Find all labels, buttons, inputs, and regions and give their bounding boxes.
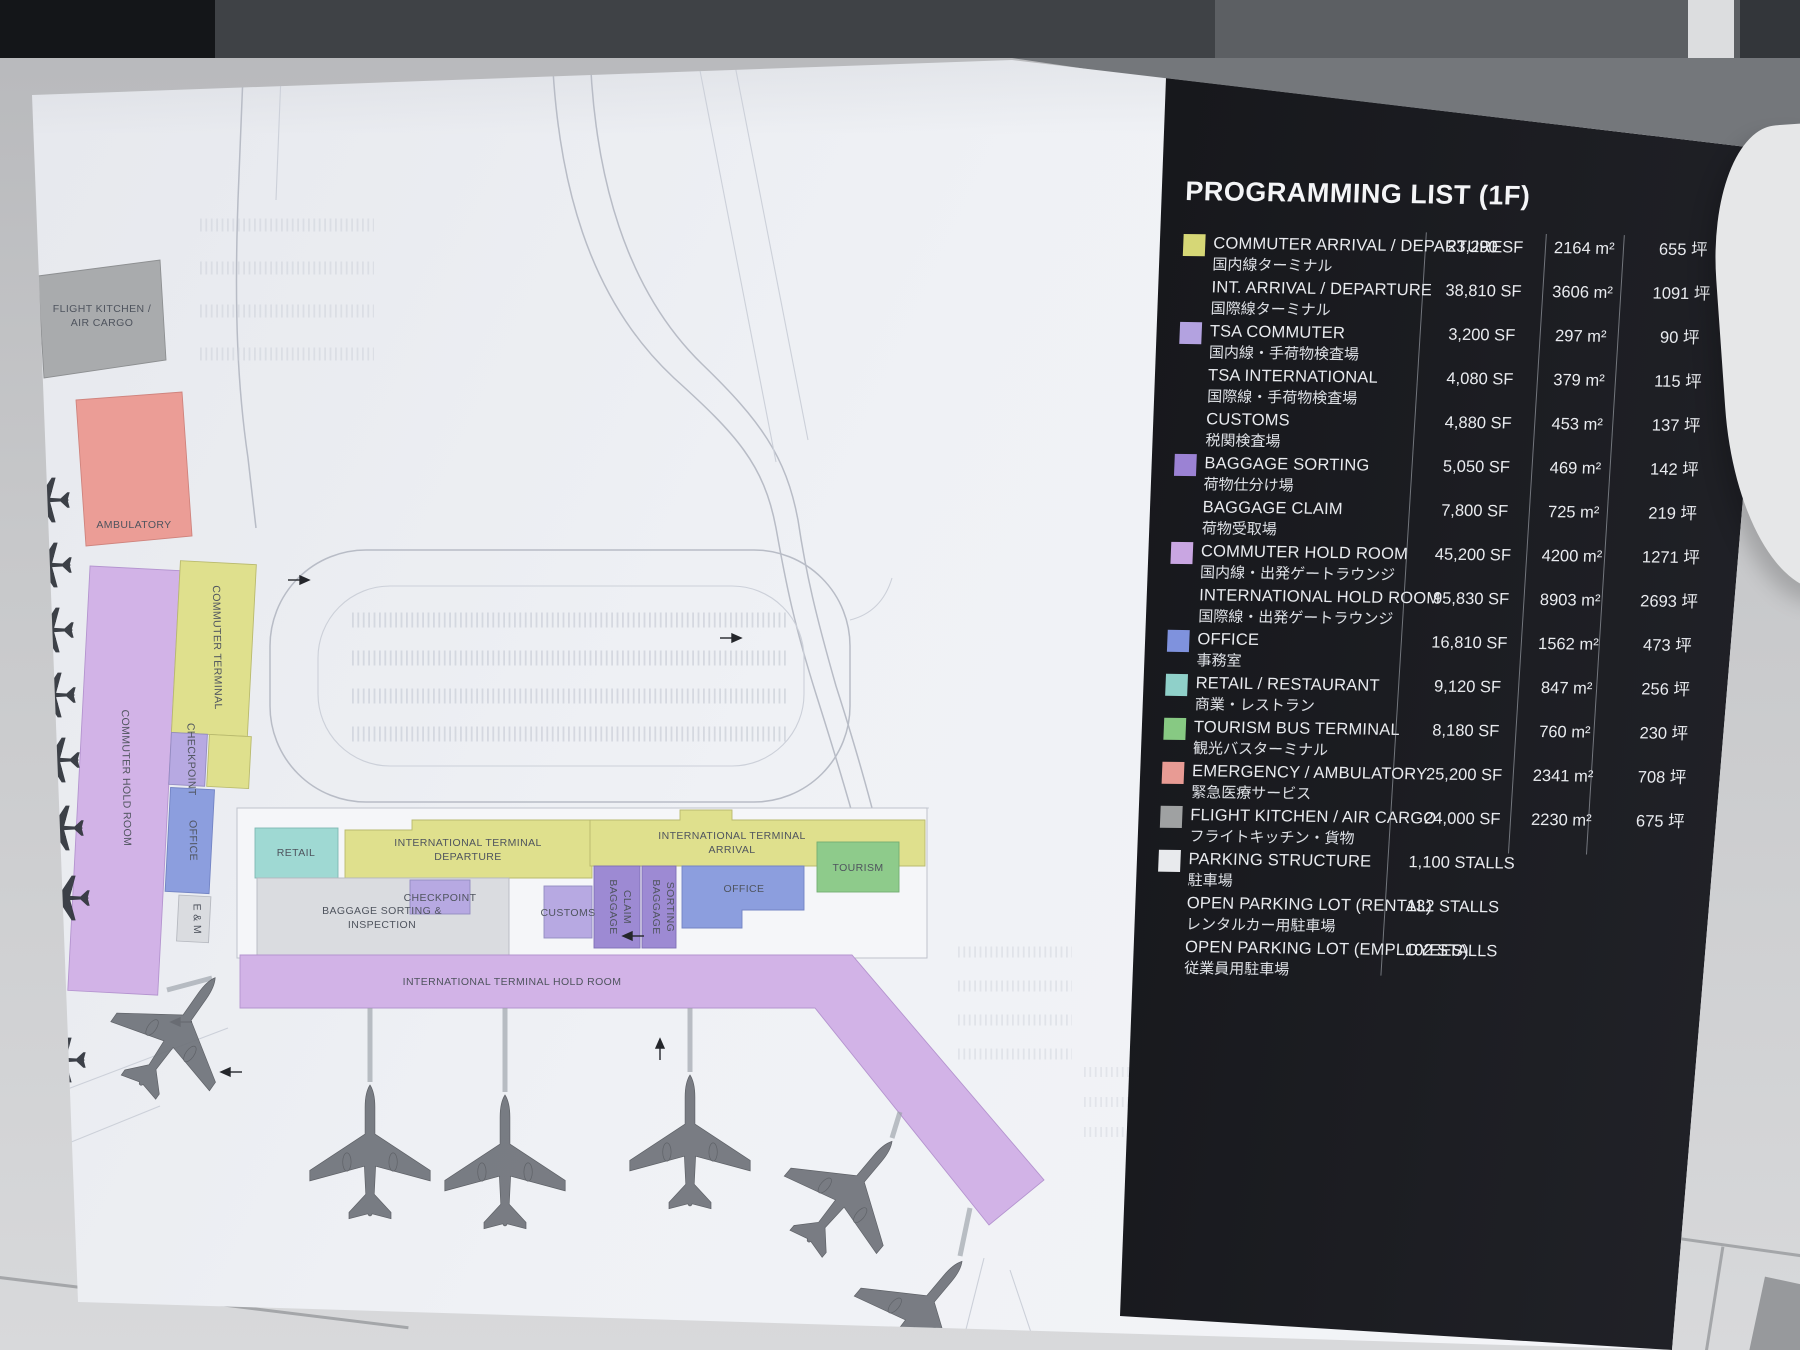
dark-band-top [215,0,1215,58]
legend-value-m2: 297 m² [1541,326,1620,348]
legend-row: FLIGHT KITCHEN / AIR CARGOフライトキッチン・貨物24,… [1159,805,1723,856]
airplane-icon [32,478,70,523]
zone-swatch [1162,762,1185,784]
baggage-sorting-label-line1: BAGGAGE [650,879,662,934]
intl-hold-room-label: INTERNATIONAL TERMINAL HOLD ROOM [403,976,622,988]
intl-arrival-label-line1: INTERNATIONAL TERMINAL [658,830,805,842]
airplane-icon [310,1085,430,1219]
legend-value-sf: 7,800 SF [1414,500,1535,523]
airplane-icon [760,1103,938,1283]
checkpoint-left-label: CHECKPOINT [184,723,197,796]
legend-label-en: OFFICE [1197,629,1410,653]
airplane-icon [36,1038,86,1083]
legend-label-jp: 観光バスターミナル [1193,738,1406,762]
commuter-hold-room-label: COMMUTER HOLD ROOM [119,709,133,846]
legend-label-jp: レンタルカー用駐車場 [1186,914,1399,938]
panel-title: PROGRAMMING LIST (1F) [1185,176,1748,215]
legend-value-m2: 2164 m² [1545,238,1624,260]
zone-swatch [1165,674,1188,696]
legend-value-m2 [1521,854,1599,855]
legend-value-m2 [1519,898,1597,899]
legend-value-sf: 38,810 SF [1423,280,1544,303]
legend-row: CUSTOMS税関検査場4,880 SF453 m²137 坪 [1175,409,1739,460]
legend-row: OFFICE事務室16,810 SF1562 m²473 坪 [1166,629,1730,680]
customs-label: CUSTOMS [540,907,595,919]
dark-object-top-left [0,0,215,58]
legend-value-tsubo: 256 坪 [1605,679,1726,702]
legend-value-sf: 9,120 SF [1407,676,1528,699]
floor-seam [1703,1247,1725,1350]
intl-departure-label-line2: DEPARTURE [434,851,501,863]
zone-swatch [1170,542,1193,564]
zone-swatch [1160,806,1183,828]
legend-label-jp: 国内線・手荷物検査場 [1208,342,1421,366]
airplane-icon [630,1075,750,1209]
legend-value-m2: 725 m² [1534,502,1613,524]
legend-value-sf: 1,100 STALLS [1400,852,1521,875]
legend-value-sf: 4,880 SF [1418,412,1539,435]
legend-rows: COMMUTER ARRIVAL / DEPARTURE国内線ターミナル23,2… [1154,233,1746,988]
legend-label-en: BAGGAGE CLAIM [1202,497,1415,521]
legend-label-jp: 国内線ターミナル [1212,254,1425,278]
legend-label-en: INT. ARRIVAL / DEPARTURE [1211,277,1424,301]
legend-label-en: TSA COMMUTER [1209,321,1422,345]
dark-corner-top-right [1740,0,1800,58]
tourism-label: TOURISM [832,862,883,874]
legend-label-en: OPEN PARKING LOT (RENTAL) [1186,893,1399,917]
legend-row: BAGGAGE SORTING荷物仕分け場5,050 SF469 m²142 坪 [1173,453,1737,504]
legend-label-en: CUSTOMS [1206,409,1419,433]
legend-value-m2: 4200 m² [1532,546,1611,568]
legend-row: TSA COMMUTER国内線・手荷物検査場3,200 SF297 m²90 坪 [1178,321,1742,372]
airport-site-plan: FLIGHT KITCHEN / AIR CARGO AMBULATORY CO… [32,60,1172,1350]
legend-label-en: PARKING STRUCTURE [1188,849,1401,873]
legend-value-sf: 132 STALLS [1398,896,1519,919]
legend-label-en: RETAIL / RESTAURANT [1195,673,1408,697]
legend-label-jp: 駐車場 [1187,870,1400,894]
legend-label-jp: 荷物仕分け場 [1203,474,1416,498]
legend-value-m2: 3606 m² [1543,282,1622,304]
legend-label-jp: 従業員用駐車場 [1184,958,1397,982]
photo-of-presentation-board: FLIGHT KITCHEN / AIR CARGO AMBULATORY CO… [0,0,1800,1350]
legend-value-m2: 469 m² [1536,458,1615,480]
airplane-icon [32,738,80,783]
zone-swatch [1158,850,1181,872]
white-sliver-top [1688,0,1734,58]
legend-value-tsubo: 675 坪 [1600,811,1721,834]
baggage-sorting-inspection-line1: BAGGAGE SORTING & [322,905,442,917]
legend-label-en: TSA INTERNATIONAL [1208,365,1421,389]
legend-row: OPEN PARKING LOT (RENTAL)レンタルカー用駐車場132 S… [1155,893,1719,944]
legend-value-tsubo: 230 坪 [1603,723,1724,746]
legend-label-jp: 商業・レストラン [1194,694,1407,718]
legend-value-tsubo: 219 坪 [1612,503,1733,526]
legend-value-sf: 16,810 SF [1409,632,1530,655]
flight-kitchen-label-line1: FLIGHT KITCHEN / [53,303,151,315]
zone-swatch [1183,234,1206,256]
legend-label-jp: 荷物受取場 [1201,518,1414,542]
baggage-sorting-label-line2: SORTING [664,882,676,932]
legend-label-en: BAGGAGE SORTING [1204,453,1417,477]
legend-label-jp: 国際線ターミナル [1210,298,1423,322]
legend-label-jp: 税関検査場 [1205,430,1418,454]
legend-value-sf: 8,180 SF [1405,720,1526,743]
legend-row: INT. ARRIVAL / DEPARTURE国際線ターミナル38,810 S… [1180,277,1744,328]
legend-label-en: OPEN PARKING LOT (EMPLOYEES) [1185,937,1398,961]
zone-intl-hold-room [240,955,1044,1225]
legend-row: INTERNATIONAL HOLD ROOM国際線・出発ゲートラウンジ95,8… [1168,585,1732,636]
checkpoint-mid-label: CHECKPOINT [404,892,477,904]
baggage-claim-label-line2: CLAIM [621,890,633,924]
legend-value-tsubo: 142 坪 [1614,459,1735,482]
baggage-claim-label-line1: BAGGAGE [607,879,619,934]
zone-swatch [1179,322,1202,344]
legend-value-tsubo: 137 坪 [1616,415,1737,438]
flow-arrow-icon [221,1068,242,1076]
legend-value-m2: 8903 m² [1531,590,1610,612]
airplane-icon [830,1223,1008,1350]
commuter-pier: COMMUTER TERMINAL COMMUTER HOLD ROOM CHE… [68,556,261,999]
legend-label-en: INTERNATIONAL HOLD ROOM [1199,585,1412,609]
legend-label-en: FLIGHT KITCHEN / AIR CARGO [1190,805,1403,829]
commuter-terminal-label: COMMUTER TERMINAL [210,585,224,710]
airplane-icon [445,1095,565,1229]
legend-label-en: TOURISM BUS TERMINAL [1193,717,1406,741]
legend-label-en: EMERGENCY / AMBULATORY [1192,761,1405,785]
legend-label-jp: 緊急医療サービス [1191,782,1404,806]
intl-arrival-label-line2: ARRIVAL [709,844,756,856]
legend-row: RETAIL / RESTAURANT商業・レストラン9,120 SF847 m… [1164,673,1728,724]
legend-label-en: COMMUTER HOLD ROOM [1201,541,1414,565]
legend-row: TSA INTERNATIONAL国際線・手荷物検査場4,080 SF379 m… [1177,365,1741,416]
programming-list: PROGRAMMING LIST (1F) COMMUTER ARRIVAL /… [1154,176,1748,988]
office-mid-label: OFFICE [724,883,765,895]
legend-value-m2: 453 m² [1538,414,1617,436]
em-label: E & M [190,903,203,934]
legend-value-m2: 1562 m² [1529,634,1608,656]
baggage-sorting-inspection-line2: INSPECTION [348,919,416,931]
legend-row: PARKING STRUCTURE駐車場1,100 STALLS [1157,849,1721,900]
flow-arrow-icon [656,1039,664,1060]
presentation-board: FLIGHT KITCHEN / AIR CARGO AMBULATORY CO… [0,0,1800,1350]
office-left-label: OFFICE [186,820,199,861]
legend-value-sf: 5,050 SF [1416,456,1537,479]
legend-row: COMMUTER ARRIVAL / DEPARTURE国内線ターミナル23,2… [1182,233,1746,284]
legend-label-jp: 国際線・手荷物検査場 [1207,386,1420,410]
legend-value-m2: 379 m² [1540,370,1619,392]
legend-label-jp: 事務室 [1196,650,1409,674]
legend-label-jp: 国際線・出発ゲートラウンジ [1198,606,1411,630]
legend-value-m2 [1517,942,1595,943]
zone-baggage-sorting-inspection [257,878,509,956]
legend-value-sf: 95,830 SF [1411,588,1532,611]
legend-row: OPEN PARKING LOT (EMPLOYEES)従業員用駐車場102 S… [1154,937,1718,988]
legend-value-m2: 847 m² [1527,678,1606,700]
legend-value-sf: 25,200 SF [1404,764,1525,787]
legend-value-sf: 45,200 SF [1412,544,1533,567]
zone-swatch [1167,630,1190,652]
airplane-icon [32,608,74,653]
legend-row: TOURISM BUS TERMINAL観光バスターミナル8,180 SF760… [1163,717,1727,768]
zone-swatch [1174,454,1197,476]
airplane-icon [32,673,76,718]
legend-value-tsubo: 2693 坪 [1609,591,1730,614]
ambulatory-label: AMBULATORY [96,519,171,531]
intl-departure-label-line1: INTERNATIONAL TERMINAL [394,837,541,849]
legend-value-sf: 3,200 SF [1421,324,1542,347]
flight-kitchen-label-line2: AIR CARGO [71,317,134,329]
legend-value-tsubo: 115 坪 [1618,371,1739,394]
legend-label-jp: 国内線・出発ゲートラウンジ [1200,562,1413,586]
airplane-icon [32,543,72,588]
legend-value-sf: 24,000 SF [1402,808,1523,831]
floor-scuff [1748,1277,1800,1350]
legend-value-tsubo: 708 坪 [1602,767,1723,790]
flow-arrow-icon [720,634,741,642]
legend-value-tsubo: 1271 坪 [1610,547,1731,570]
legend-label-en: COMMUTER ARRIVAL / DEPARTURE [1213,233,1426,257]
legend-row: COMMUTER HOLD ROOM国内線・出発ゲートラウンジ45,200 SF… [1170,541,1734,592]
legend-value-sf: 4,080 SF [1420,368,1541,391]
legend-row: BAGGAGE CLAIM荷物受取場7,800 SF725 m²219 坪 [1171,497,1735,548]
legend-value-sf: 102 STALLS [1397,940,1518,963]
legend-value-tsubo: 473 坪 [1607,635,1728,658]
legend-row: EMERGENCY / AMBULATORY緊急医療サービス25,200 SF2… [1161,761,1725,812]
retail-label: RETAIL [277,847,315,859]
zone-commuter-terminal-ext [207,734,252,788]
zone-swatch [1163,718,1186,740]
legend-value-sf: 23,290 SF [1425,236,1546,259]
legend-label-jp: フライトキッチン・貨物 [1189,826,1402,850]
